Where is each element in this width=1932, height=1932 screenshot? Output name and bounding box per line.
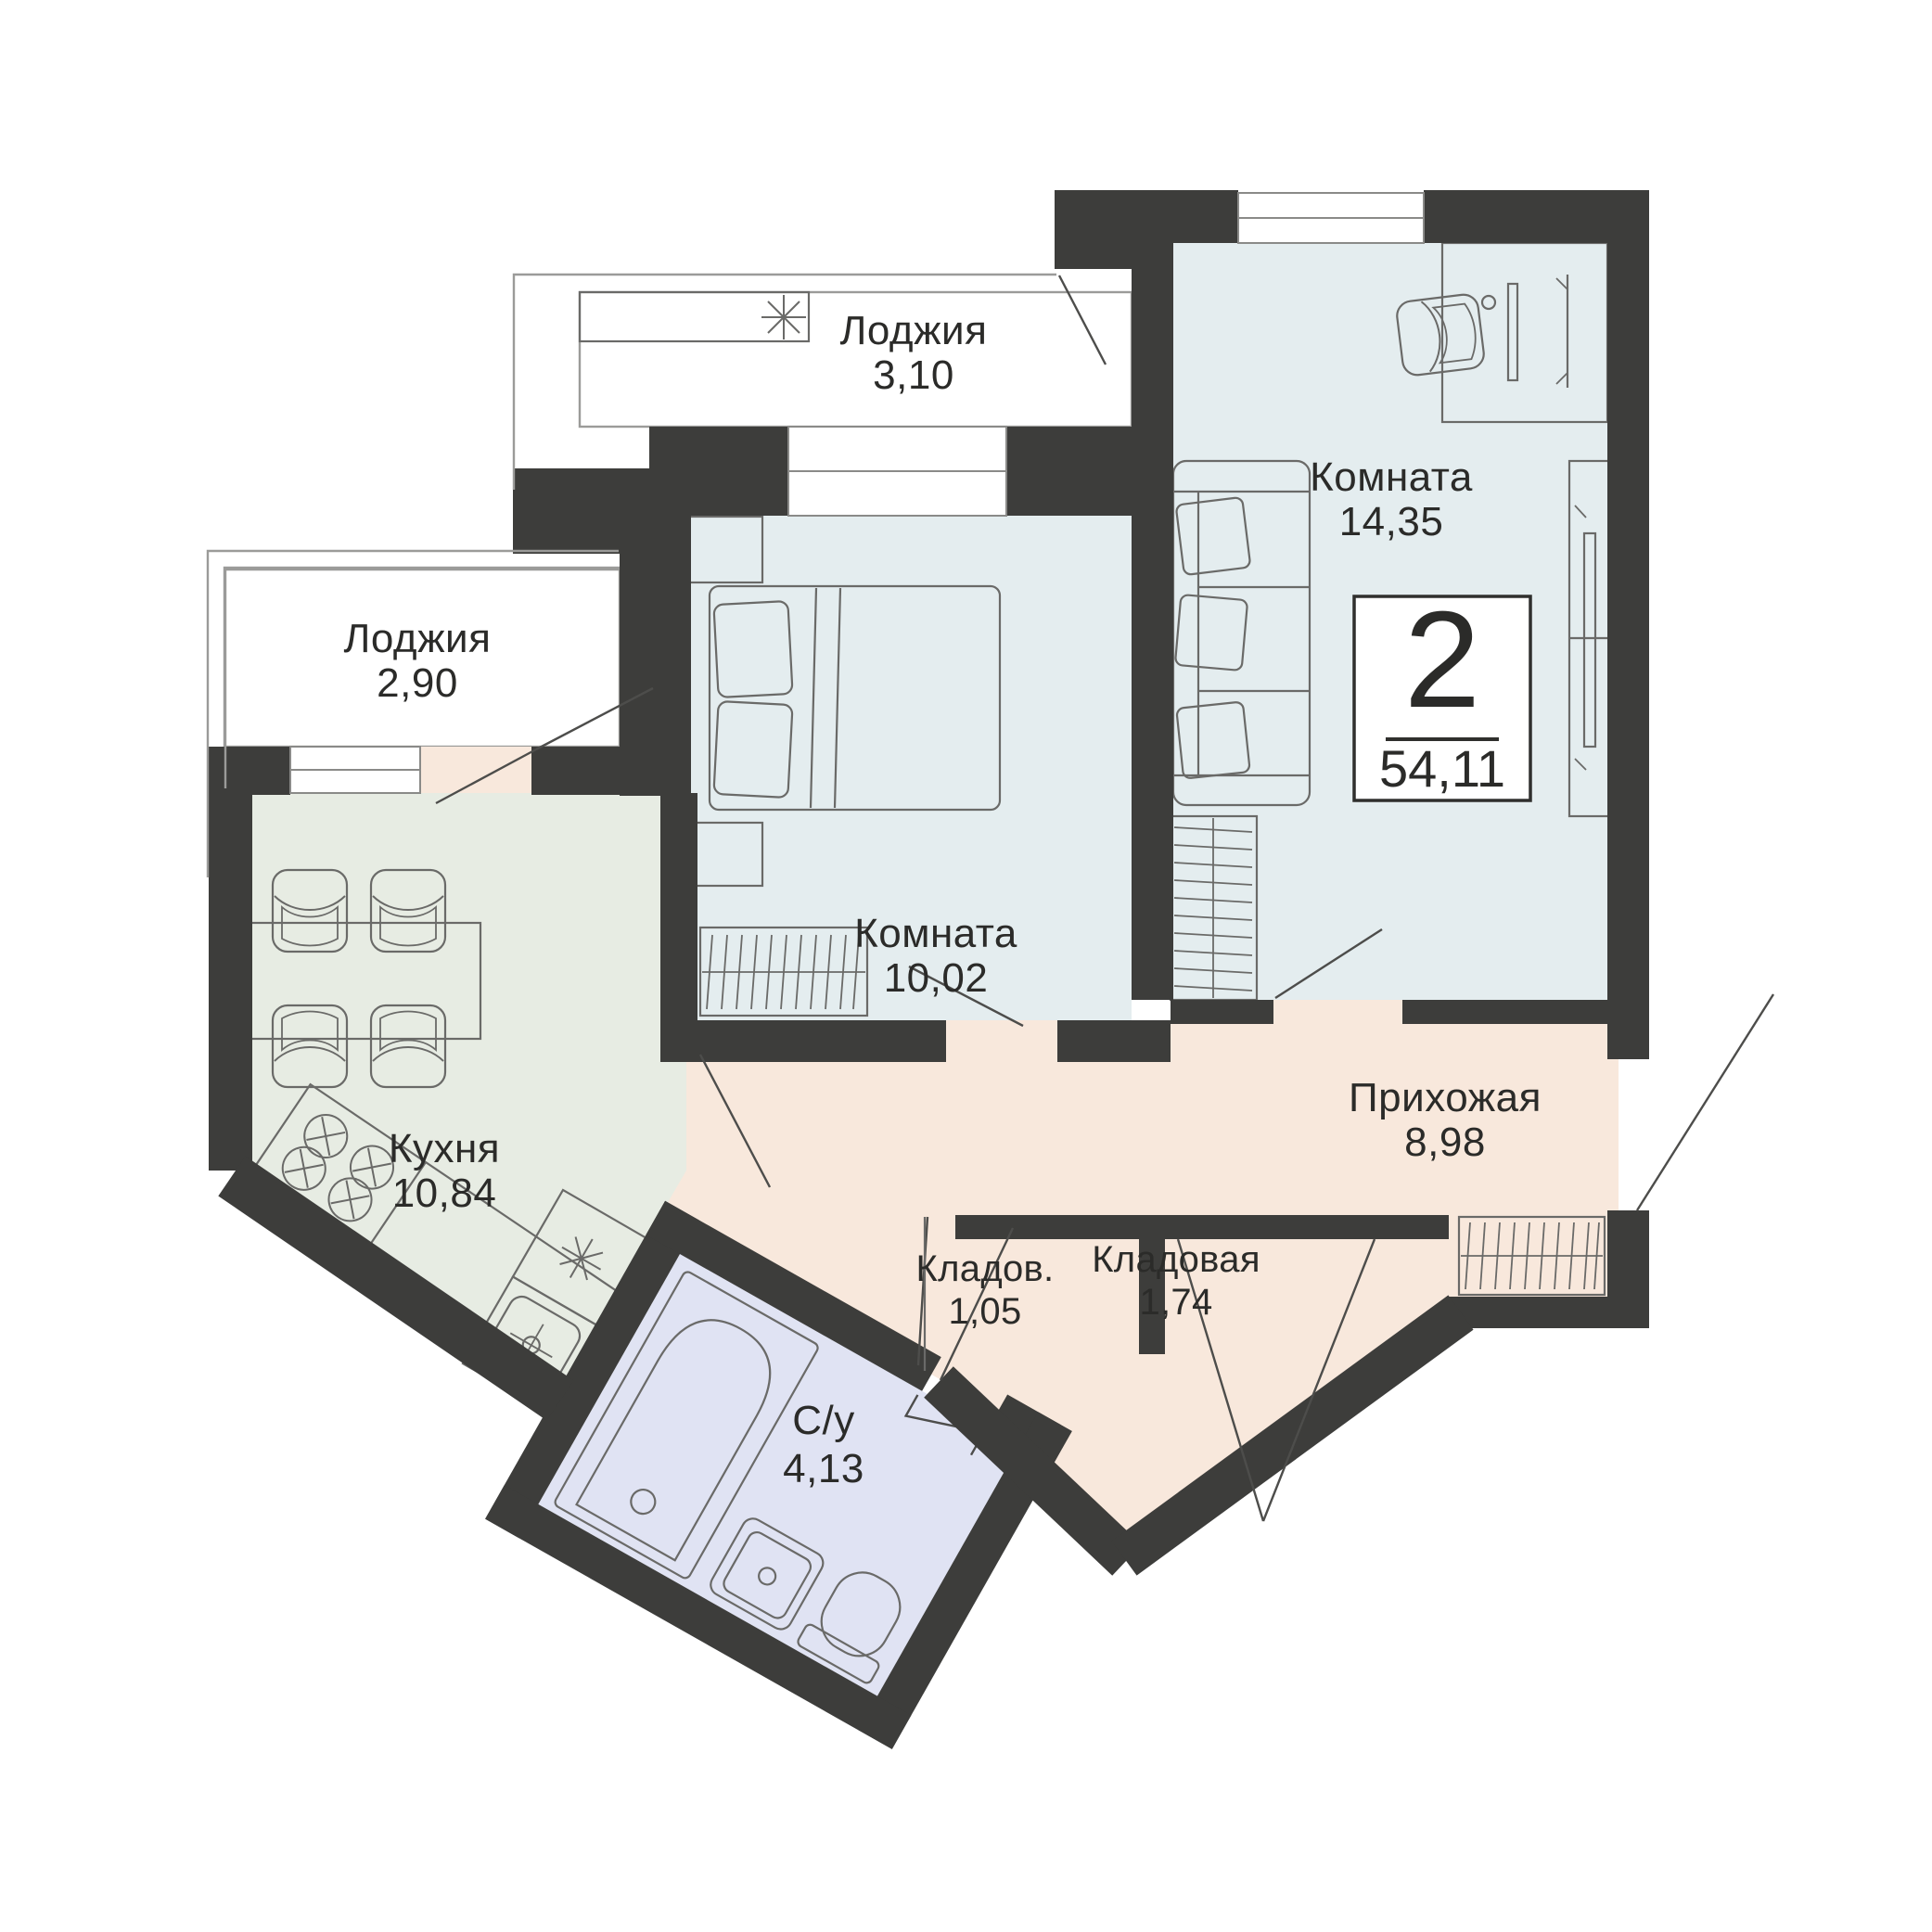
label-kitchen-area: 10,84 <box>392 1171 497 1216</box>
label-kitchen-name: Кухня <box>389 1126 500 1171</box>
label-room-small-area: 10,02 <box>884 955 989 1001</box>
label-loggia-top-area: 3,10 <box>873 352 954 398</box>
floor-plan-svg: Лоджия 3,10 Комната 14,35 Лоджия 2,90 Ко… <box>0 0 1932 1932</box>
loggia-door-threshold <box>420 747 531 793</box>
label-bathroom-area: 4,13 <box>783 1446 864 1491</box>
bedroom-window <box>788 427 1006 516</box>
badge-total-area: 54,11 <box>1379 739 1505 798</box>
loggia-cabinet <box>580 292 809 341</box>
kitchen-window <box>290 747 420 793</box>
snowflake-icon <box>761 295 806 339</box>
badge-rooms-count: 2 <box>1404 583 1480 736</box>
label-bathroom-name: С/у <box>792 1398 855 1443</box>
label-loggia-left-name: Лоджия <box>344 616 492 661</box>
area-badge: 2 54,11 <box>1354 583 1530 800</box>
label-room-large-area: 14,35 <box>1339 499 1444 544</box>
label-loggia-left-area: 2,90 <box>377 660 458 706</box>
label-room-small-name: Комната <box>854 911 1017 956</box>
living-window <box>1238 193 1424 243</box>
label-hallway-name: Прихожая <box>1349 1075 1542 1120</box>
label-storage-small-name: Кладов. <box>916 1248 1055 1289</box>
label-room-large-name: Комната <box>1310 454 1473 500</box>
floor-plan-page: Лоджия 3,10 Комната 14,35 Лоджия 2,90 Ко… <box>0 0 1932 1932</box>
label-storage-small-area: 1,05 <box>948 1291 1021 1332</box>
label-hallway-area: 8,98 <box>1404 1120 1486 1165</box>
label-storage-area: 1,74 <box>1139 1282 1212 1323</box>
label-loggia-top-name: Лоджия <box>840 308 988 353</box>
label-storage-name: Кладовая <box>1092 1239 1260 1280</box>
